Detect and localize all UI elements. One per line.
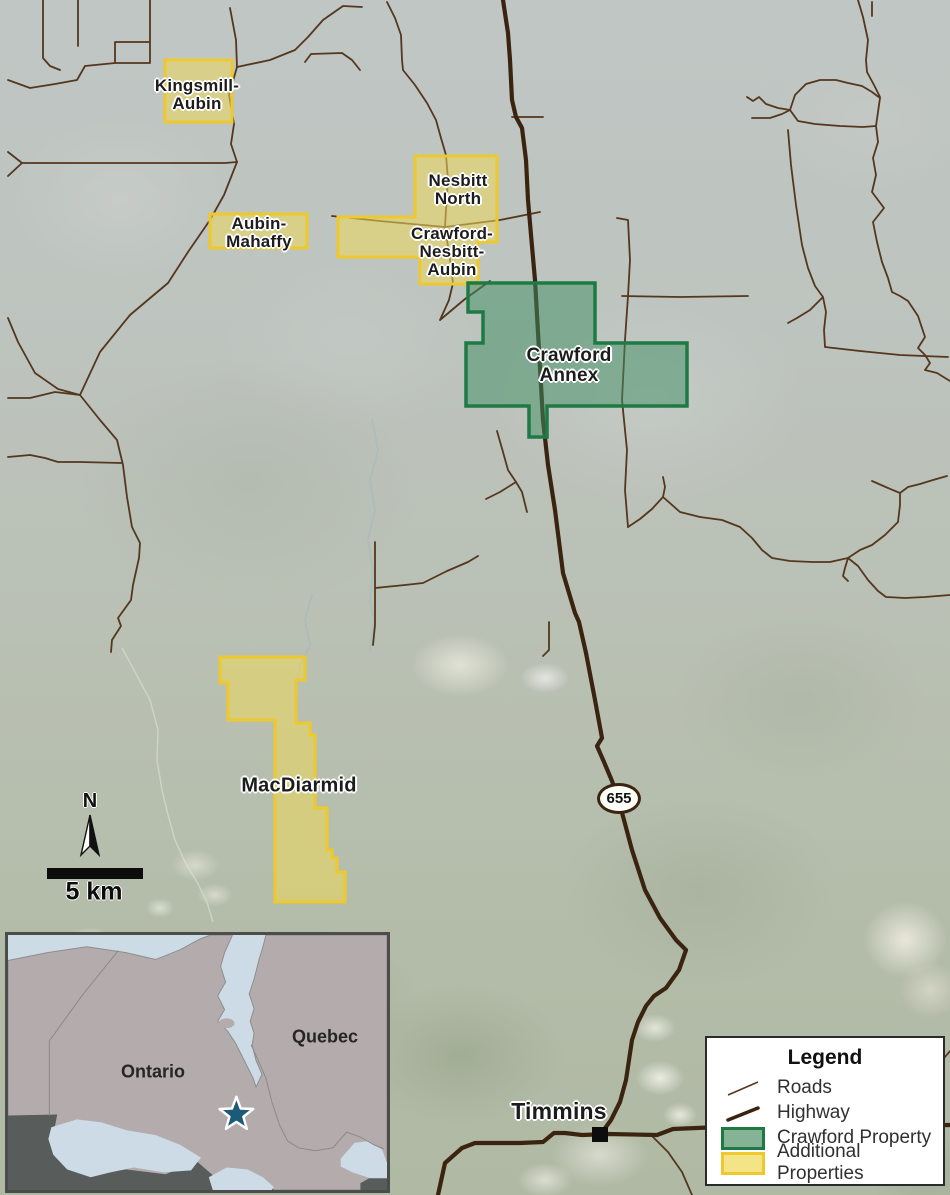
kingsmill-aubin-label: Kingsmill-Aubin bbox=[155, 77, 239, 113]
faint-trail bbox=[122, 648, 213, 922]
legend-item-roads: Roads bbox=[721, 1076, 943, 1100]
crawford-property-swatch bbox=[721, 1127, 765, 1150]
additional-properties-swatch bbox=[721, 1152, 765, 1175]
inset-map-graphic bbox=[8, 935, 387, 1190]
timmins-town-marker bbox=[592, 1127, 608, 1142]
legend-item-additional-properties: Additional Properties bbox=[721, 1151, 943, 1175]
aubin-mahaffy-label: Aubin-Mahaffy bbox=[226, 215, 292, 251]
highway-655-path bbox=[503, 0, 686, 1131]
highway-line-icon bbox=[721, 1103, 765, 1123]
north-arrow-icon bbox=[70, 813, 110, 857]
map-canvas: Kingsmill-Aubin Aubin-Mahaffy NesbittNor… bbox=[0, 0, 950, 1195]
inset-locator-map bbox=[5, 932, 390, 1193]
crawford-annex-label: CrawfordAnnex bbox=[527, 346, 612, 386]
roads-line-icon bbox=[721, 1078, 765, 1098]
highway-lines bbox=[438, 0, 950, 1195]
legend-item-highway: Highway bbox=[721, 1101, 943, 1125]
timmins-label: Timmins bbox=[511, 1099, 607, 1123]
north-arrow-label: N bbox=[70, 790, 110, 813]
stream-lines bbox=[296, 420, 378, 690]
nesbitt-north-label: NesbittNorth bbox=[428, 172, 487, 208]
inset-bay-island bbox=[219, 1018, 235, 1028]
macdiarmid-label: MacDiarmid bbox=[241, 776, 356, 797]
legend-panel: Legend Roads Highway Crawford Property A… bbox=[705, 1036, 945, 1186]
inset-quebec-label: Quebec bbox=[292, 1027, 358, 1048]
scale-bar-label: 5 km bbox=[66, 878, 123, 907]
crawford-nesbitt-aubin-label: Crawford-Nesbitt-Aubin bbox=[411, 225, 493, 279]
legend-title: Legend bbox=[721, 1046, 929, 1070]
inset-ontario-label: Ontario bbox=[121, 1062, 185, 1083]
highway-655-number: 655 bbox=[606, 790, 631, 807]
highway-655-shield: 655 bbox=[597, 783, 641, 814]
north-arrow: N bbox=[70, 790, 110, 862]
